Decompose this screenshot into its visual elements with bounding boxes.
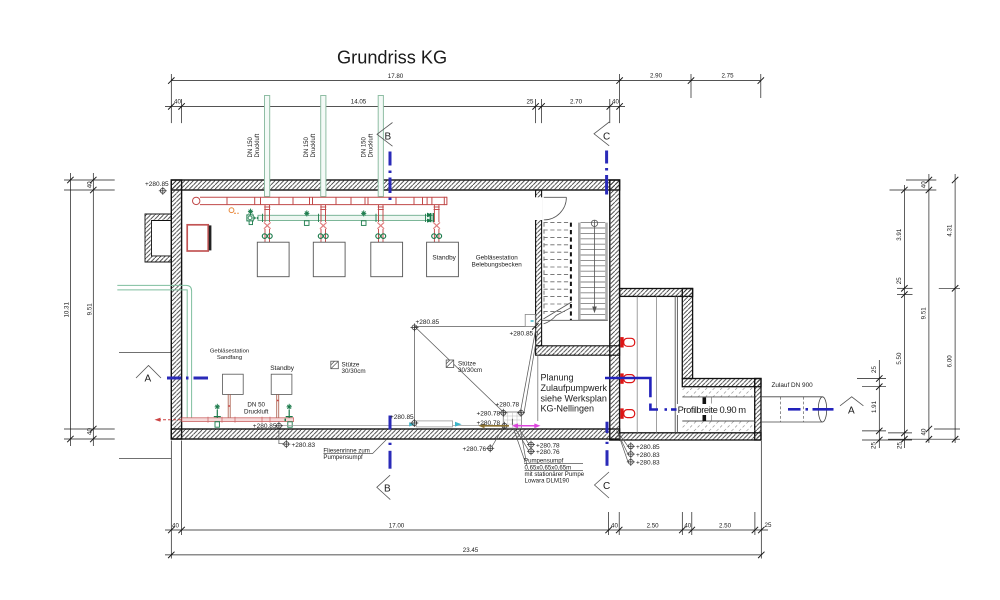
svg-text:Druckluft: Druckluft [311,133,317,157]
svg-text:Belebungsbecken: Belebungsbecken [472,261,523,268]
svg-text:+280.85: +280.85 [510,330,534,337]
svg-text:B: B [385,132,392,143]
svg-text:+280.78: +280.78 [477,410,501,417]
svg-text:Sandfang: Sandfang [217,355,242,361]
svg-text:2.90: 2.90 [650,73,663,80]
svg-text:DN 150: DN 150 [362,136,368,157]
svg-text:A: A [145,374,152,385]
svg-text:30/30cm: 30/30cm [342,368,366,375]
svg-text:DN 150: DN 150 [304,136,310,157]
svg-text:Druckluft: Druckluft [244,408,269,415]
svg-text:+280.85: +280.85 [636,444,660,451]
svg-text:C: C [603,481,610,492]
svg-text:Druckluft: Druckluft [255,133,261,157]
svg-text:+280.85: +280.85 [390,414,414,421]
svg-text:3.91: 3.91 [896,228,903,241]
svg-text:25: 25 [765,522,772,529]
svg-text:30/30cm: 30/30cm [458,367,482,374]
svg-text:17.80: 17.80 [388,73,404,80]
svg-text:40: 40 [86,181,93,188]
svg-text:17.00: 17.00 [389,522,405,529]
svg-text:+280.78: +280.78 [496,402,520,409]
svg-text:40: 40 [172,522,179,529]
svg-text:DN 150: DN 150 [248,136,254,157]
svg-text:40: 40 [921,181,928,188]
svg-text:+280.76: +280.76 [536,449,560,456]
svg-text:Standby: Standby [432,255,456,262]
svg-text:40: 40 [612,99,619,106]
svg-text:5.50: 5.50 [896,352,903,365]
svg-text:Profilbreite 0.90 m: Profilbreite 0.90 m [678,404,747,415]
svg-text:Druckluft: Druckluft [369,133,375,157]
svg-text:C: C [603,132,610,143]
svg-text:Gebläsestation: Gebläsestation [476,254,519,261]
svg-text:25: 25 [871,366,878,373]
svg-text:25: 25 [896,442,903,449]
svg-text:40: 40 [86,428,93,435]
svg-text:Pumpensumpf: Pumpensumpf [323,454,363,461]
svg-text:23.45: 23.45 [463,547,479,554]
svg-text:Lowara DLM190: Lowara DLM190 [525,478,570,485]
svg-text:siehe Werksplan: siehe Werksplan [541,393,607,403]
svg-text:+280.85: +280.85 [253,423,277,430]
svg-text:+280.78: +280.78 [477,420,501,427]
svg-text:2.70: 2.70 [570,99,583,106]
svg-text:2.50: 2.50 [647,522,660,529]
svg-text:KG-Nellingen: KG-Nellingen [541,404,595,414]
svg-text:+280.85: +280.85 [145,181,169,188]
svg-text:+280.83: +280.83 [636,460,660,467]
svg-text:Grundriss KG: Grundriss KG [337,48,447,68]
svg-text:1.91: 1.91 [871,400,878,413]
svg-text:9.51: 9.51 [86,303,93,316]
svg-text:Standby: Standby [270,365,295,372]
svg-text:4.31: 4.31 [947,224,954,237]
svg-text:40: 40 [921,428,928,435]
svg-text:25: 25 [871,442,878,449]
svg-text:Gebläsestation: Gebläsestation [210,348,249,354]
svg-text:2.50: 2.50 [719,522,732,529]
svg-text:Zulauf DN 900: Zulauf DN 900 [772,382,814,389]
svg-text:6.00: 6.00 [947,355,954,368]
svg-text:+280.83: +280.83 [292,442,316,449]
svg-text:Zulaufpumpwerk: Zulaufpumpwerk [541,383,608,393]
svg-text:A: A [848,406,855,417]
svg-text:Planung: Planung [541,373,574,383]
svg-text:40: 40 [611,522,618,529]
svg-text:9.51: 9.51 [921,307,928,320]
svg-text:+280.85: +280.85 [416,319,440,326]
svg-text:10.31: 10.31 [63,301,70,317]
svg-text:2.75: 2.75 [721,73,734,80]
svg-text:B: B [384,483,391,494]
svg-text:25: 25 [896,277,903,284]
svg-text:14.05: 14.05 [351,99,367,106]
svg-text:25: 25 [527,99,534,106]
svg-text:+280.76: +280.76 [463,446,487,453]
svg-text:40: 40 [684,522,691,529]
svg-text:+280.83: +280.83 [636,452,660,459]
svg-text:40: 40 [174,99,181,106]
